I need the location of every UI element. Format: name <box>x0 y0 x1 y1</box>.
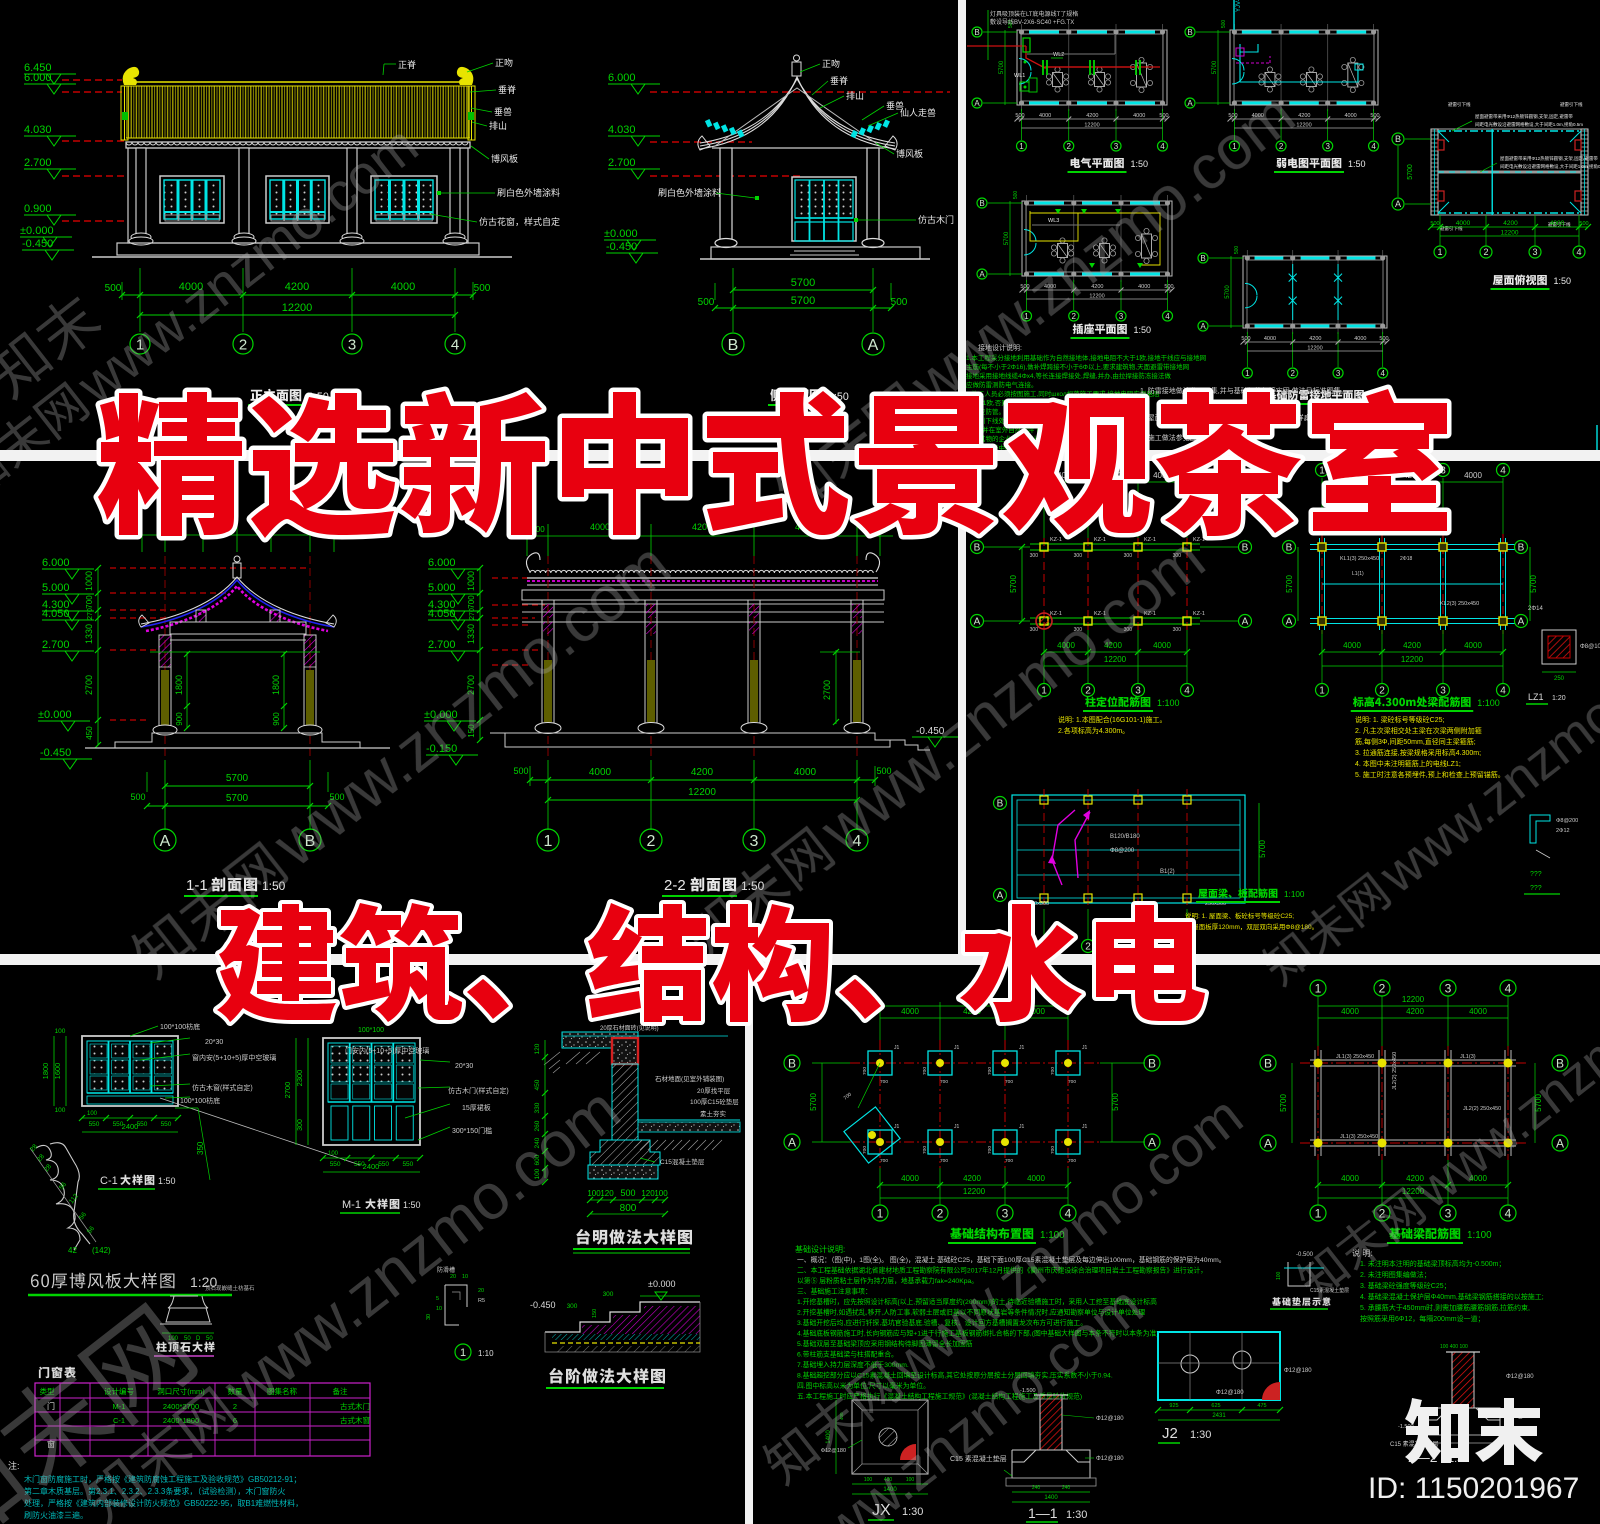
svg-text:4000: 4000 <box>1343 641 1361 650</box>
svg-text:1000: 1000 <box>84 571 94 591</box>
svg-text:4000: 4000 <box>590 522 610 532</box>
svg-text:1: 1 <box>1315 1206 1322 1220</box>
svg-text:4000: 4000 <box>1464 471 1482 480</box>
svg-text:A: A <box>974 99 980 108</box>
svg-text:B: B <box>997 799 1004 810</box>
svg-text:1: 1 <box>1019 142 1024 151</box>
svg-text:3: 3 <box>1445 981 1452 995</box>
svg-text:1: 1 <box>1315 981 1322 995</box>
svg-text:12200: 12200 <box>1500 230 1518 237</box>
svg-text:250: 250 <box>1554 676 1565 682</box>
svg-text:C15混凝土垫层: C15混凝土垫层 <box>660 1157 705 1166</box>
svg-text:700: 700 <box>987 1146 993 1154</box>
svg-text:12200: 12200 <box>688 787 716 798</box>
svg-text:1:20: 1:20 <box>1552 695 1566 702</box>
svg-text:JL2(2) 250x450: JL2(2) 250x450 <box>1392 1052 1398 1090</box>
svg-text:A: A <box>1264 1136 1272 1150</box>
svg-text:垂脊: 垂脊 <box>830 75 848 86</box>
svg-text:4000: 4000 <box>1550 220 1565 227</box>
svg-text:700: 700 <box>922 1146 928 1154</box>
svg-text:150: 150 <box>592 1309 598 1318</box>
svg-text:550: 550 <box>89 1121 100 1128</box>
svg-text:KZ-1: KZ-1 <box>1193 611 1205 617</box>
svg-text:625: 625 <box>1211 1403 1220 1409</box>
svg-text:500: 500 <box>698 297 715 308</box>
svg-text:500: 500 <box>105 283 122 294</box>
svg-text:3: 3 <box>1325 142 1330 151</box>
svg-text:J1: J1 <box>1019 1124 1025 1130</box>
svg-text:300: 300 <box>297 1119 304 1131</box>
svg-text:4000: 4000 <box>794 767 817 778</box>
svg-text:4: 4 <box>1505 981 1512 995</box>
svg-text:-0.450: -0.450 <box>40 747 71 759</box>
svg-text:1: 1 <box>1437 247 1442 257</box>
svg-text:6.000: 6.000 <box>42 557 70 569</box>
svg-text:刷防火油漆三遍。: 刷防火油漆三遍。 <box>24 1510 88 1520</box>
svg-text:门: 门 <box>47 1401 55 1411</box>
svg-text:550: 550 <box>161 1121 172 1128</box>
svg-text:500: 500 <box>1013 191 1019 200</box>
svg-text:L1(1): L1(1) <box>1352 571 1364 577</box>
svg-text:A: A <box>1242 617 1249 628</box>
svg-text:4200: 4200 <box>285 281 309 293</box>
svg-text:???: ??? <box>1530 871 1542 878</box>
svg-text:4000: 4000 <box>391 281 415 293</box>
svg-text:4000: 4000 <box>1469 1007 1487 1016</box>
svg-text:5700: 5700 <box>791 295 815 307</box>
svg-text:3: 3 <box>348 336 356 353</box>
svg-text:5700: 5700 <box>1225 285 1231 299</box>
svg-text:1330: 1330 <box>84 624 94 644</box>
svg-text:4000: 4000 <box>1264 336 1276 342</box>
svg-text:屋面避雷带采用Φ12热镀锌圆钢,支架,固定,避雷带: 屋面避雷带采用Φ12热镀锌圆钢,支架,固定,避雷带 <box>1475 113 1573 120</box>
svg-text:仙人走兽: 仙人走兽 <box>900 107 936 118</box>
svg-text:C-1: C-1 <box>113 1416 125 1425</box>
svg-text:1:100: 1:100 <box>1467 1230 1492 1241</box>
svg-text:550: 550 <box>330 1161 341 1168</box>
svg-text:20: 20 <box>450 1274 456 1280</box>
svg-text:5700: 5700 <box>791 277 815 289</box>
svg-text:(142): (142) <box>92 1246 111 1255</box>
svg-text:550: 550 <box>402 1161 413 1168</box>
svg-text:1: 1 <box>1245 369 1250 378</box>
svg-text:2.各项标高为4.300m。: 2.各项标高为4.300m。 <box>1058 726 1129 735</box>
svg-text:1:50: 1:50 <box>1554 276 1572 286</box>
svg-text:4. 本图中未注明箍筋上的电线LZ1;: 4. 本图中未注明箍筋上的电线LZ1; <box>1355 759 1461 768</box>
svg-text:500: 500 <box>1221 20 1227 29</box>
svg-text:WL2: WL2 <box>1053 52 1064 58</box>
svg-text:5700: 5700 <box>1009 575 1018 593</box>
svg-text:4.050: 4.050 <box>428 608 456 620</box>
svg-text:B120/B180: B120/B180 <box>1110 834 1140 840</box>
svg-text:2.700: 2.700 <box>608 157 636 169</box>
svg-text:A: A <box>788 1135 796 1149</box>
svg-text:4000: 4000 <box>901 1007 919 1016</box>
svg-text:4000: 4000 <box>1039 113 1051 119</box>
svg-text:700: 700 <box>862 1146 868 1154</box>
svg-text:4000: 4000 <box>1341 1174 1359 1183</box>
svg-text:4200: 4200 <box>963 1174 981 1183</box>
svg-text:敷设导线BV-2X6-SC40 +FG.TX: 敷设导线BV-2X6-SC40 +FG.TX <box>990 18 1074 26</box>
svg-text:500: 500 <box>1234 246 1240 255</box>
svg-text:1:50: 1:50 <box>158 1176 176 1186</box>
svg-text:???: ??? <box>1530 885 1542 892</box>
svg-text:2700: 2700 <box>84 675 94 695</box>
svg-text:12200: 12200 <box>1084 123 1099 129</box>
svg-text:500: 500 <box>891 297 908 308</box>
svg-text:2: 2 <box>1483 247 1488 257</box>
svg-text:700: 700 <box>1005 1079 1013 1085</box>
svg-text:100: 100 <box>55 1028 66 1035</box>
svg-text:5700: 5700 <box>809 1093 818 1111</box>
svg-text:A: A <box>160 833 171 850</box>
svg-text:WL1: WL1 <box>1014 73 1025 79</box>
svg-text:4000: 4000 <box>1354 336 1366 342</box>
svg-text:2: 2 <box>1379 981 1386 995</box>
svg-text:4: 4 <box>1160 142 1165 151</box>
svg-text:排山: 排山 <box>489 120 507 131</box>
svg-text:2: 2 <box>1290 369 1295 378</box>
svg-text:基础设计说明:: 基础设计说明: <box>795 1244 845 1254</box>
svg-text:4: 4 <box>1380 369 1385 378</box>
svg-text:1330: 1330 <box>466 624 476 644</box>
svg-text:450: 450 <box>534 1079 541 1090</box>
svg-text:Φ12@180: Φ12@180 <box>1216 1390 1244 1396</box>
svg-text:A: A <box>1200 322 1206 331</box>
svg-text:4200: 4200 <box>1309 336 1321 342</box>
svg-text:排山: 排山 <box>846 90 864 101</box>
svg-text:12200: 12200 <box>963 1187 986 1196</box>
svg-text:B: B <box>1242 543 1249 554</box>
svg-text:3: 3 <box>1135 686 1141 697</box>
svg-text:500: 500 <box>1159 113 1168 119</box>
svg-text:洞口尺寸(mm): 洞口尺寸(mm) <box>157 1386 205 1396</box>
svg-text:3. 基础梁砼强度等级砼C25；: 3. 基础梁砼强度等级砼C25； <box>1360 1281 1451 1290</box>
svg-text:1: 1 <box>544 833 553 850</box>
svg-text:10: 10 <box>436 1306 442 1312</box>
svg-text:2Φ18: 2Φ18 <box>1400 556 1413 562</box>
svg-text:500: 500 <box>1430 221 1439 227</box>
svg-text:500: 500 <box>1015 113 1024 119</box>
svg-text:B: B <box>979 199 984 208</box>
svg-text:A: A <box>1187 99 1193 108</box>
svg-text:A: A <box>1518 617 1525 628</box>
svg-text:10: 10 <box>462 1274 468 1280</box>
svg-text:3. 拉通筋连接,按梁规格采用标高4.300m;: 3. 拉通筋连接,按梁规格采用标高4.300m; <box>1355 748 1481 757</box>
svg-text:2700: 2700 <box>822 680 832 700</box>
svg-text:700: 700 <box>1068 1079 1076 1085</box>
svg-text:J2: J2 <box>1162 1425 1178 1442</box>
svg-text:3: 3 <box>1114 142 1119 151</box>
svg-text:博风板: 博风板 <box>491 153 518 164</box>
svg-text:3: 3 <box>1440 686 1446 697</box>
svg-text:2: 2 <box>1067 142 1072 151</box>
svg-text:475: 475 <box>1257 1403 1266 1409</box>
svg-text:2Φ14: 2Φ14 <box>1528 606 1543 612</box>
svg-text:说明: 1. 屋面梁、板砼标号等级砼C25;: 说明: 1. 屋面梁、板砼标号等级砼C25; <box>1185 911 1294 920</box>
svg-text:4.030: 4.030 <box>608 124 636 136</box>
svg-text:3: 3 <box>750 833 759 850</box>
svg-text:A: A <box>868 337 879 354</box>
svg-text:备注: 备注 <box>333 1386 348 1396</box>
svg-text:2: 2 <box>1085 686 1091 697</box>
svg-text:5700: 5700 <box>1529 575 1538 593</box>
svg-text:1800: 1800 <box>174 675 184 695</box>
svg-text:6.000: 6.000 <box>428 557 456 569</box>
svg-text:240: 240 <box>1062 1485 1071 1491</box>
svg-text:窗内安(5+10+5)厚中空玻璃: 窗内安(5+10+5)厚中空玻璃 <box>192 1053 276 1062</box>
svg-text:B: B <box>1286 543 1293 554</box>
svg-text:4200: 4200 <box>691 767 714 778</box>
svg-text:1800: 1800 <box>41 1063 50 1080</box>
svg-text:3: 3 <box>1336 369 1341 378</box>
svg-text:1:50: 1:50 <box>1134 325 1152 335</box>
svg-text:4: 4 <box>1165 312 1170 321</box>
svg-text:5700: 5700 <box>1407 164 1414 180</box>
svg-text:Φ8@100: Φ8@100 <box>1580 644 1600 650</box>
svg-text:1: 1 <box>1319 686 1325 697</box>
svg-text:2.700: 2.700 <box>24 157 52 169</box>
svg-text:2700: 2700 <box>283 1082 292 1099</box>
svg-text:木门窗防腐施工时，严格按《建筑防腐蚀工程施工及验收规范》GB: 木门窗防腐施工时，严格按《建筑防腐蚀工程施工及验收规范》GB50212-91； <box>24 1474 301 1484</box>
svg-text:1. 未注明本注明的基础梁顶标高均为-0.500m；: 1. 未注明本注明的基础梁顶标高均为-0.500m； <box>1360 1259 1505 1268</box>
svg-text:5. 承腰筋大于450mm时,则需加腰筋腰筋钢筋,拉筋约束,: 5. 承腰筋大于450mm时,则需加腰筋腰筋钢筋,拉筋约束, <box>1360 1303 1530 1312</box>
svg-text:YJV-4x25: YJV-4x25 <box>1236 0 1242 12</box>
svg-text:270: 270 <box>87 608 94 620</box>
svg-text:-0.500: -0.500 <box>1296 1252 1314 1258</box>
svg-text:100 400 100: 100 400 100 <box>1440 1344 1468 1350</box>
svg-text:2431: 2431 <box>1212 1413 1226 1419</box>
svg-text:700: 700 <box>1005 1158 1013 1164</box>
svg-text:-0.450: -0.450 <box>530 1300 556 1310</box>
svg-text:仿古木窗(样式自定): 仿古木窗(样式自定) <box>192 1083 253 1092</box>
svg-text:仿古木门(样式自定): 仿古木门(样式自定) <box>448 1086 509 1095</box>
svg-text:WL3: WL3 <box>1048 218 1059 224</box>
svg-text:700: 700 <box>1068 1158 1076 1164</box>
svg-text:4: 4 <box>1500 466 1506 477</box>
svg-text:100*100枋底: 100*100枋底 <box>160 1022 200 1031</box>
svg-text:1400: 1400 <box>1044 1495 1058 1501</box>
svg-text:500: 500 <box>130 792 145 802</box>
svg-text:Φ8@200: Φ8@200 <box>1556 818 1578 824</box>
svg-text:KL2(3) 250x450: KL2(3) 250x450 <box>1440 601 1479 607</box>
svg-text:门安内(5+10+5)厚中空玻璃: 门安内(5+10+5)厚中空玻璃 <box>345 1046 429 1055</box>
svg-text:2. 屋面板厚120mm，双层双向采用Φ8@180。: 2. 屋面板厚120mm，双层双向采用Φ8@180。 <box>1185 922 1318 931</box>
svg-text:4: 4 <box>1371 142 1376 151</box>
svg-text:说明: 1.本图配合(16G101-1)施工。: 说明: 1.本图配合(16G101-1)施工。 <box>1058 715 1167 724</box>
svg-text:42: 42 <box>68 1246 77 1255</box>
svg-text:3: 3 <box>1002 1206 1009 1220</box>
svg-text:5700: 5700 <box>1279 1094 1288 1112</box>
svg-text:300: 300 <box>1030 553 1039 559</box>
svg-text:B: B <box>1395 134 1401 144</box>
svg-text:270: 270 <box>469 608 476 620</box>
svg-text:300: 300 <box>603 1291 614 1298</box>
svg-text:700: 700 <box>880 1158 888 1164</box>
svg-text:925: 925 <box>1169 1403 1178 1409</box>
svg-text:4: 4 <box>1500 686 1506 697</box>
svg-text:筋,每侧3Φ,间距50mm,直径同主梁箍筋;: 筋,每侧3Φ,间距50mm,直径同主梁箍筋; <box>1355 737 1476 746</box>
svg-text:300: 300 <box>567 1303 578 1310</box>
svg-text:4.050: 4.050 <box>42 608 70 620</box>
svg-text:100: 100 <box>55 1107 66 1114</box>
svg-text:LZ1: LZ1 <box>1528 692 1544 702</box>
svg-text:J1: J1 <box>1082 1045 1088 1051</box>
svg-text:5700: 5700 <box>1111 1093 1120 1111</box>
svg-text:J1: J1 <box>1082 1124 1088 1130</box>
svg-text:B: B <box>1518 543 1525 554</box>
svg-text:4000: 4000 <box>1133 113 1145 119</box>
svg-text:2.700: 2.700 <box>428 639 456 651</box>
svg-text:B1(2): B1(2) <box>1160 869 1175 875</box>
svg-text:C15素混凝土垫层: C15素混凝土垫层 <box>1310 1287 1349 1294</box>
svg-text:A: A <box>979 270 985 279</box>
svg-text:5700: 5700 <box>226 773 249 784</box>
svg-text:B: B <box>1264 1056 1272 1070</box>
svg-text:JL1(3): JL1(3) <box>1460 1054 1476 1060</box>
svg-text:4. 基础梁混凝土保护层Φ40mm,基础梁钢筋搭接的以按施工: 4. 基础梁混凝土保护层Φ40mm,基础梁钢筋搭接的以按施工; <box>1360 1292 1544 1301</box>
svg-text:1:30: 1:30 <box>1190 1429 1211 1441</box>
svg-text:500: 500 <box>1579 221 1588 227</box>
svg-text:Φ12@180: Φ12@180 <box>1096 1456 1124 1462</box>
svg-text:4200: 4200 <box>1086 113 1098 119</box>
svg-text:三、基础施工注意事项：: 三、基础施工注意事项： <box>797 1287 872 1296</box>
svg-text:100: 100 <box>654 1189 668 1198</box>
svg-text:刷白色外墙涂料: 刷白色外墙涂料 <box>497 187 560 198</box>
svg-text:50: 50 <box>184 1336 191 1342</box>
svg-text:4200: 4200 <box>1298 113 1310 119</box>
svg-text:±0.000: ±0.000 <box>604 228 638 240</box>
svg-text:D: D <box>196 1336 201 1342</box>
svg-text:1:50: 1:50 <box>1348 159 1366 169</box>
svg-text:第二章木质基层。第2.3.1、2.3.2、2.3.3条要求，: 第二章木质基层。第2.3.1、2.3.2、2.3.3条要求，（试验检测），木门窗… <box>24 1486 285 1496</box>
svg-text:2400: 2400 <box>363 1162 380 1171</box>
svg-text:1:100: 1:100 <box>1477 698 1500 708</box>
svg-text:说明: 1. 梁砼标号等级砼C25;: 说明: 1. 梁砼标号等级砼C25; <box>1355 715 1445 724</box>
svg-text:900: 900 <box>272 712 281 726</box>
svg-text:100: 100 <box>87 1111 98 1117</box>
svg-text:-0.450: -0.450 <box>22 238 53 250</box>
svg-text:R5: R5 <box>478 1298 485 1304</box>
svg-text:刷白色外墙涂料: 刷白色外墙涂料 <box>658 187 721 198</box>
svg-text:700: 700 <box>922 1067 928 1075</box>
svg-text:A: A <box>1395 199 1401 209</box>
svg-text:500: 500 <box>474 283 491 294</box>
svg-text:灯具吸顶装在LT底电源线T了规格: 灯具吸顶装在LT底电源线T了规格 <box>990 10 1078 18</box>
svg-text:700: 700 <box>1050 1146 1056 1154</box>
svg-text:100: 100 <box>587 1189 601 1198</box>
svg-text:900: 900 <box>175 712 184 726</box>
svg-text:正吻: 正吻 <box>495 57 513 68</box>
svg-text:仿古木门: 仿古木门 <box>918 214 954 225</box>
svg-text:JL1(3) 250x450: JL1(3) 250x450 <box>1336 1054 1374 1060</box>
svg-text:4000: 4000 <box>1464 641 1482 650</box>
svg-text:3: 3 <box>1532 247 1537 257</box>
svg-text:2. 凡主次梁相交处主梁在次梁两侧附加箍: 2. 凡主次梁相交处主梁在次梁两侧附加箍 <box>1355 726 1482 735</box>
svg-text:4200: 4200 <box>1406 1007 1424 1016</box>
svg-text:J1: J1 <box>894 1124 900 1130</box>
svg-text:4000: 4000 <box>901 1174 919 1183</box>
svg-text:2Φ12: 2Φ12 <box>1556 828 1570 834</box>
svg-text:4000: 4000 <box>1344 113 1356 119</box>
svg-text:120: 120 <box>641 1189 655 1198</box>
svg-text:12200: 12200 <box>282 302 313 314</box>
svg-text:Φ12@180: Φ12@180 <box>1506 1374 1534 1380</box>
svg-text:KL1(3) 250x450: KL1(3) 250x450 <box>1340 556 1379 562</box>
svg-text:100厚C15砼垫层: 100厚C15砼垫层 <box>690 1097 739 1106</box>
svg-text:±0.000: ±0.000 <box>648 1279 675 1289</box>
svg-text:4.030: 4.030 <box>24 124 52 136</box>
svg-text:5.000: 5.000 <box>428 582 456 594</box>
svg-text:5700: 5700 <box>1285 575 1294 593</box>
svg-text:B: B <box>974 543 981 554</box>
svg-text:1:10: 1:10 <box>478 1349 494 1358</box>
svg-text:KZ-1: KZ-1 <box>1050 537 1062 543</box>
svg-text:2: 2 <box>1085 942 1091 953</box>
svg-text:100: 100 <box>1276 1271 1282 1280</box>
svg-text:4000: 4000 <box>1456 220 1471 227</box>
svg-text:100: 100 <box>328 1151 339 1157</box>
svg-text:6.000: 6.000 <box>608 72 636 84</box>
svg-text:2.700: 2.700 <box>42 639 70 651</box>
svg-text:B: B <box>974 28 979 37</box>
svg-text:4200: 4200 <box>1503 220 1518 227</box>
svg-text:0.900: 0.900 <box>24 203 52 215</box>
svg-text:100*100: 100*100 <box>358 1027 384 1034</box>
svg-text:B: B <box>728 337 739 354</box>
svg-text:4: 4 <box>451 336 459 353</box>
svg-text:240: 240 <box>1032 1485 1041 1491</box>
svg-text:1—1: 1—1 <box>1028 1505 1058 1521</box>
svg-text:700: 700 <box>862 1067 868 1075</box>
svg-text:4000: 4000 <box>1027 1174 1045 1183</box>
svg-text:屋面避雷带采用Φ12热镀锌圆钢,支架,固定,避雷带: 屋面避雷带采用Φ12热镀锌圆钢,支架,固定,避雷带 <box>1500 155 1598 162</box>
svg-text:正脊: 正脊 <box>398 59 416 70</box>
svg-text:M-1: M-1 <box>342 1199 361 1211</box>
svg-text:1:100: 1:100 <box>1157 698 1180 708</box>
svg-text:间距电光敷设沿避雷网格敷设,大于间距1.0m,拐角0.5m: 间距电光敷设沿避雷网格敷设,大于间距1.0m,拐角0.5m <box>1500 163 1600 170</box>
svg-text:2. 未注明图集编做法；: 2. 未注明图集编做法； <box>1360 1270 1431 1279</box>
svg-text:B: B <box>1148 1056 1156 1070</box>
svg-text:Φ12@180: Φ12@180 <box>821 1448 846 1454</box>
svg-text:700: 700 <box>940 1158 948 1164</box>
svg-text:4000: 4000 <box>589 767 612 778</box>
svg-text:2: 2 <box>647 833 656 850</box>
svg-text:4000: 4000 <box>1341 1007 1359 1016</box>
svg-text:石材地面(见室外铺装图): 石材地面(见室外铺装图) <box>655 1074 724 1083</box>
svg-text:避雷引下线: 避雷引下线 <box>1560 101 1583 108</box>
svg-text:300*150门槛: 300*150门槛 <box>452 1126 492 1135</box>
svg-text:间距电光敷设沿避雷网格敷设,大于间距1.0m,拐角0.5m: 间距电光敷设沿避雷网格敷设,大于间距1.0m,拐角0.5m <box>1475 121 1583 128</box>
svg-text:120: 120 <box>600 1189 614 1198</box>
svg-text:A: A <box>1556 1136 1564 1150</box>
svg-text:古式木窗: 古式木窗 <box>340 1415 370 1425</box>
svg-text:1: 1 <box>877 1206 884 1220</box>
svg-text:800: 800 <box>620 1203 637 1214</box>
svg-text:5700: 5700 <box>1004 231 1010 245</box>
svg-text:1000: 1000 <box>466 571 476 591</box>
svg-text:顶石现嵌缝土枋基石: 顶石现嵌缝土枋基石 <box>205 1284 255 1292</box>
svg-text:2: 2 <box>1379 686 1385 697</box>
svg-text:1:30: 1:30 <box>1066 1509 1087 1521</box>
svg-text:垂兽: 垂兽 <box>494 106 512 117</box>
svg-text:700: 700 <box>940 1079 948 1085</box>
svg-text:120: 120 <box>534 1043 541 1054</box>
svg-text:A: A <box>1286 617 1293 628</box>
svg-text:J1: J1 <box>894 1045 900 1051</box>
svg-text:1:100: 1:100 <box>1284 890 1305 899</box>
svg-text:300: 300 <box>1074 553 1083 559</box>
